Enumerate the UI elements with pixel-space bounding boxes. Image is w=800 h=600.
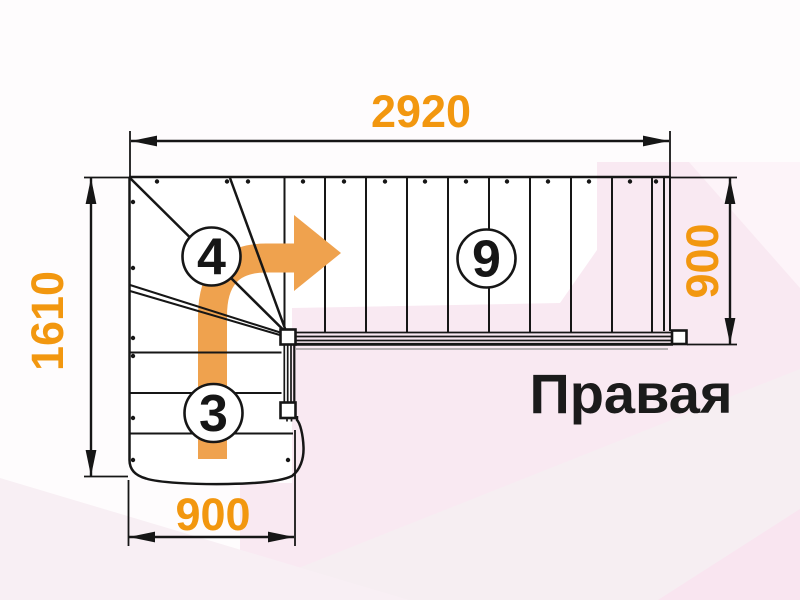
dot [131, 336, 135, 340]
dot [301, 179, 305, 183]
dot [587, 179, 591, 183]
main-flight-count-value: 9 [472, 231, 501, 289]
newel-post-center [281, 330, 296, 345]
dot [342, 179, 346, 183]
dot [131, 458, 135, 462]
newel-post-end [672, 331, 687, 345]
dim-value-right: 900 [677, 223, 728, 298]
dot [423, 179, 427, 183]
stair-plan-drawing: 4 9 3 2920 1610 900 [0, 0, 800, 600]
newel-post-lower [281, 403, 296, 419]
dim-value-bottom: 900 [175, 489, 250, 540]
dot [464, 179, 468, 183]
dim-value-left: 1610 [22, 271, 73, 371]
dot [131, 266, 135, 270]
dot [131, 200, 135, 204]
dot [225, 179, 229, 183]
dot [246, 179, 250, 183]
dot [131, 354, 135, 358]
dot [654, 179, 658, 183]
variant-label: Правая [529, 362, 732, 425]
dot [131, 416, 135, 420]
dim-value-top: 2920 [371, 86, 471, 137]
winder-count-value: 4 [197, 229, 226, 287]
dot [546, 179, 550, 183]
dot [628, 179, 632, 183]
lower-flight-count-value: 3 [199, 385, 228, 443]
dot [155, 179, 159, 183]
dot [505, 179, 509, 183]
dot [383, 179, 387, 183]
dot [286, 458, 290, 462]
stair-plan-svg: 4 9 3 2920 1610 900 [0, 0, 800, 600]
